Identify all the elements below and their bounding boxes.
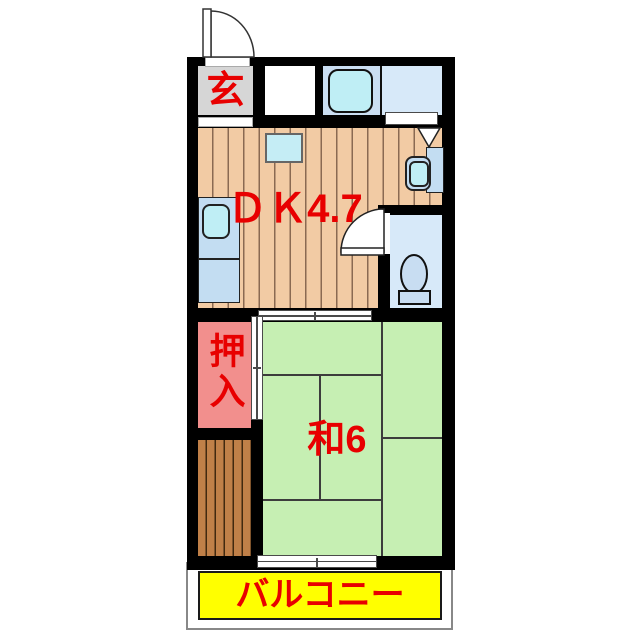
toilet-tank-icon [399,291,430,304]
entrance-door-leaf-icon [203,9,211,57]
label-dk: ＤＫ4.7 [192,186,398,232]
toilet-door-leaf-icon [341,248,384,255]
label-balcony: バルコニー [198,573,442,617]
label-washitsu: 和6 [272,418,402,462]
entrance-door-arc-icon [211,11,254,57]
floor-plan: 玄 ＤＫ4.7 押入 和6 バルコニー [0,0,640,640]
label-oshiire: 押入 [198,322,251,422]
folding-door-triangle-icon [418,128,440,147]
toilet-bowl-icon [401,255,427,293]
label-genkan: 玄 [198,67,253,115]
overlay-symbols [0,0,640,640]
